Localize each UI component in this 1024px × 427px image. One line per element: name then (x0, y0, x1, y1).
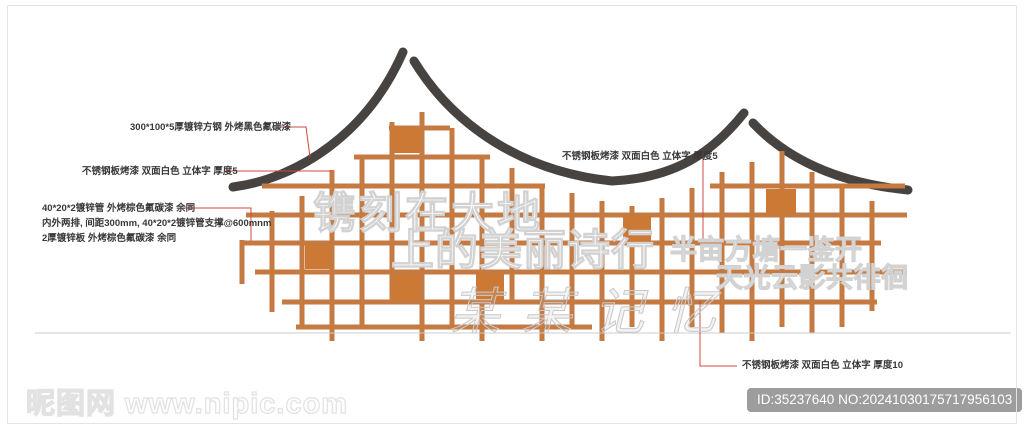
annotation-stainless-plate-left: 不锈钢板烤漆 双面白色 立体字 厚度5 (82, 164, 238, 179)
annotation-text-line2: 内外两排, 间距300mm, 40*20*2镀锌管支撑@600mnm (42, 216, 271, 231)
annotation-stainless-plate-bottom: 不锈钢板烤漆 双面白色 立体字 厚度10 (742, 358, 903, 373)
annotation-text-line1: 40*20*2镀锌管 外烤棕色氟碳漆 余同 (42, 201, 271, 216)
annotation-text: 不锈钢板烤漆 双面白色 立体字 厚度5 (82, 166, 238, 177)
annotation-galvanized-pipe: 40*20*2镀锌管 外烤棕色氟碳漆 余同 内外两排, 间距300mm, 40*… (42, 201, 271, 246)
annotation-text: 不锈钢板烤漆 双面白色 立体字 厚度10 (742, 360, 903, 371)
roof-curves (233, 52, 908, 190)
image-id-badge: ID:35237640 NO:20241030175717956103 (747, 388, 1022, 412)
annotation-text-line3: 2厚镀锌板 外烤棕色氟碳漆 余同 (42, 231, 271, 246)
annotation-stainless-plate-right: 不锈钢板烤漆 双面白色 立体字 厚度5 (562, 149, 718, 164)
design-canvas: 300*100*5厚镀锌方钢 外烤黑色氟碳漆 不锈钢板烤漆 双面白色 立体字 厚… (0, 0, 1024, 427)
slogan-line2: 上的美丽诗行 (391, 216, 655, 278)
annotation-text: 不锈钢板烤漆 双面白色 立体字 厚度5 (562, 151, 718, 162)
annotation-steel-square-tube: 300*100*5厚镀锌方钢 外烤黑色氟碳漆 (130, 120, 291, 135)
script-watermark: 某某记忆 (450, 272, 738, 344)
annotation-text: 300*100*5厚镀锌方钢 外烤黑色氟碳漆 (130, 122, 291, 133)
poem-line2: 天光云影共徘徊 (716, 256, 909, 295)
nipic-site-watermark: 昵图网 www.nipic.com (26, 380, 348, 422)
